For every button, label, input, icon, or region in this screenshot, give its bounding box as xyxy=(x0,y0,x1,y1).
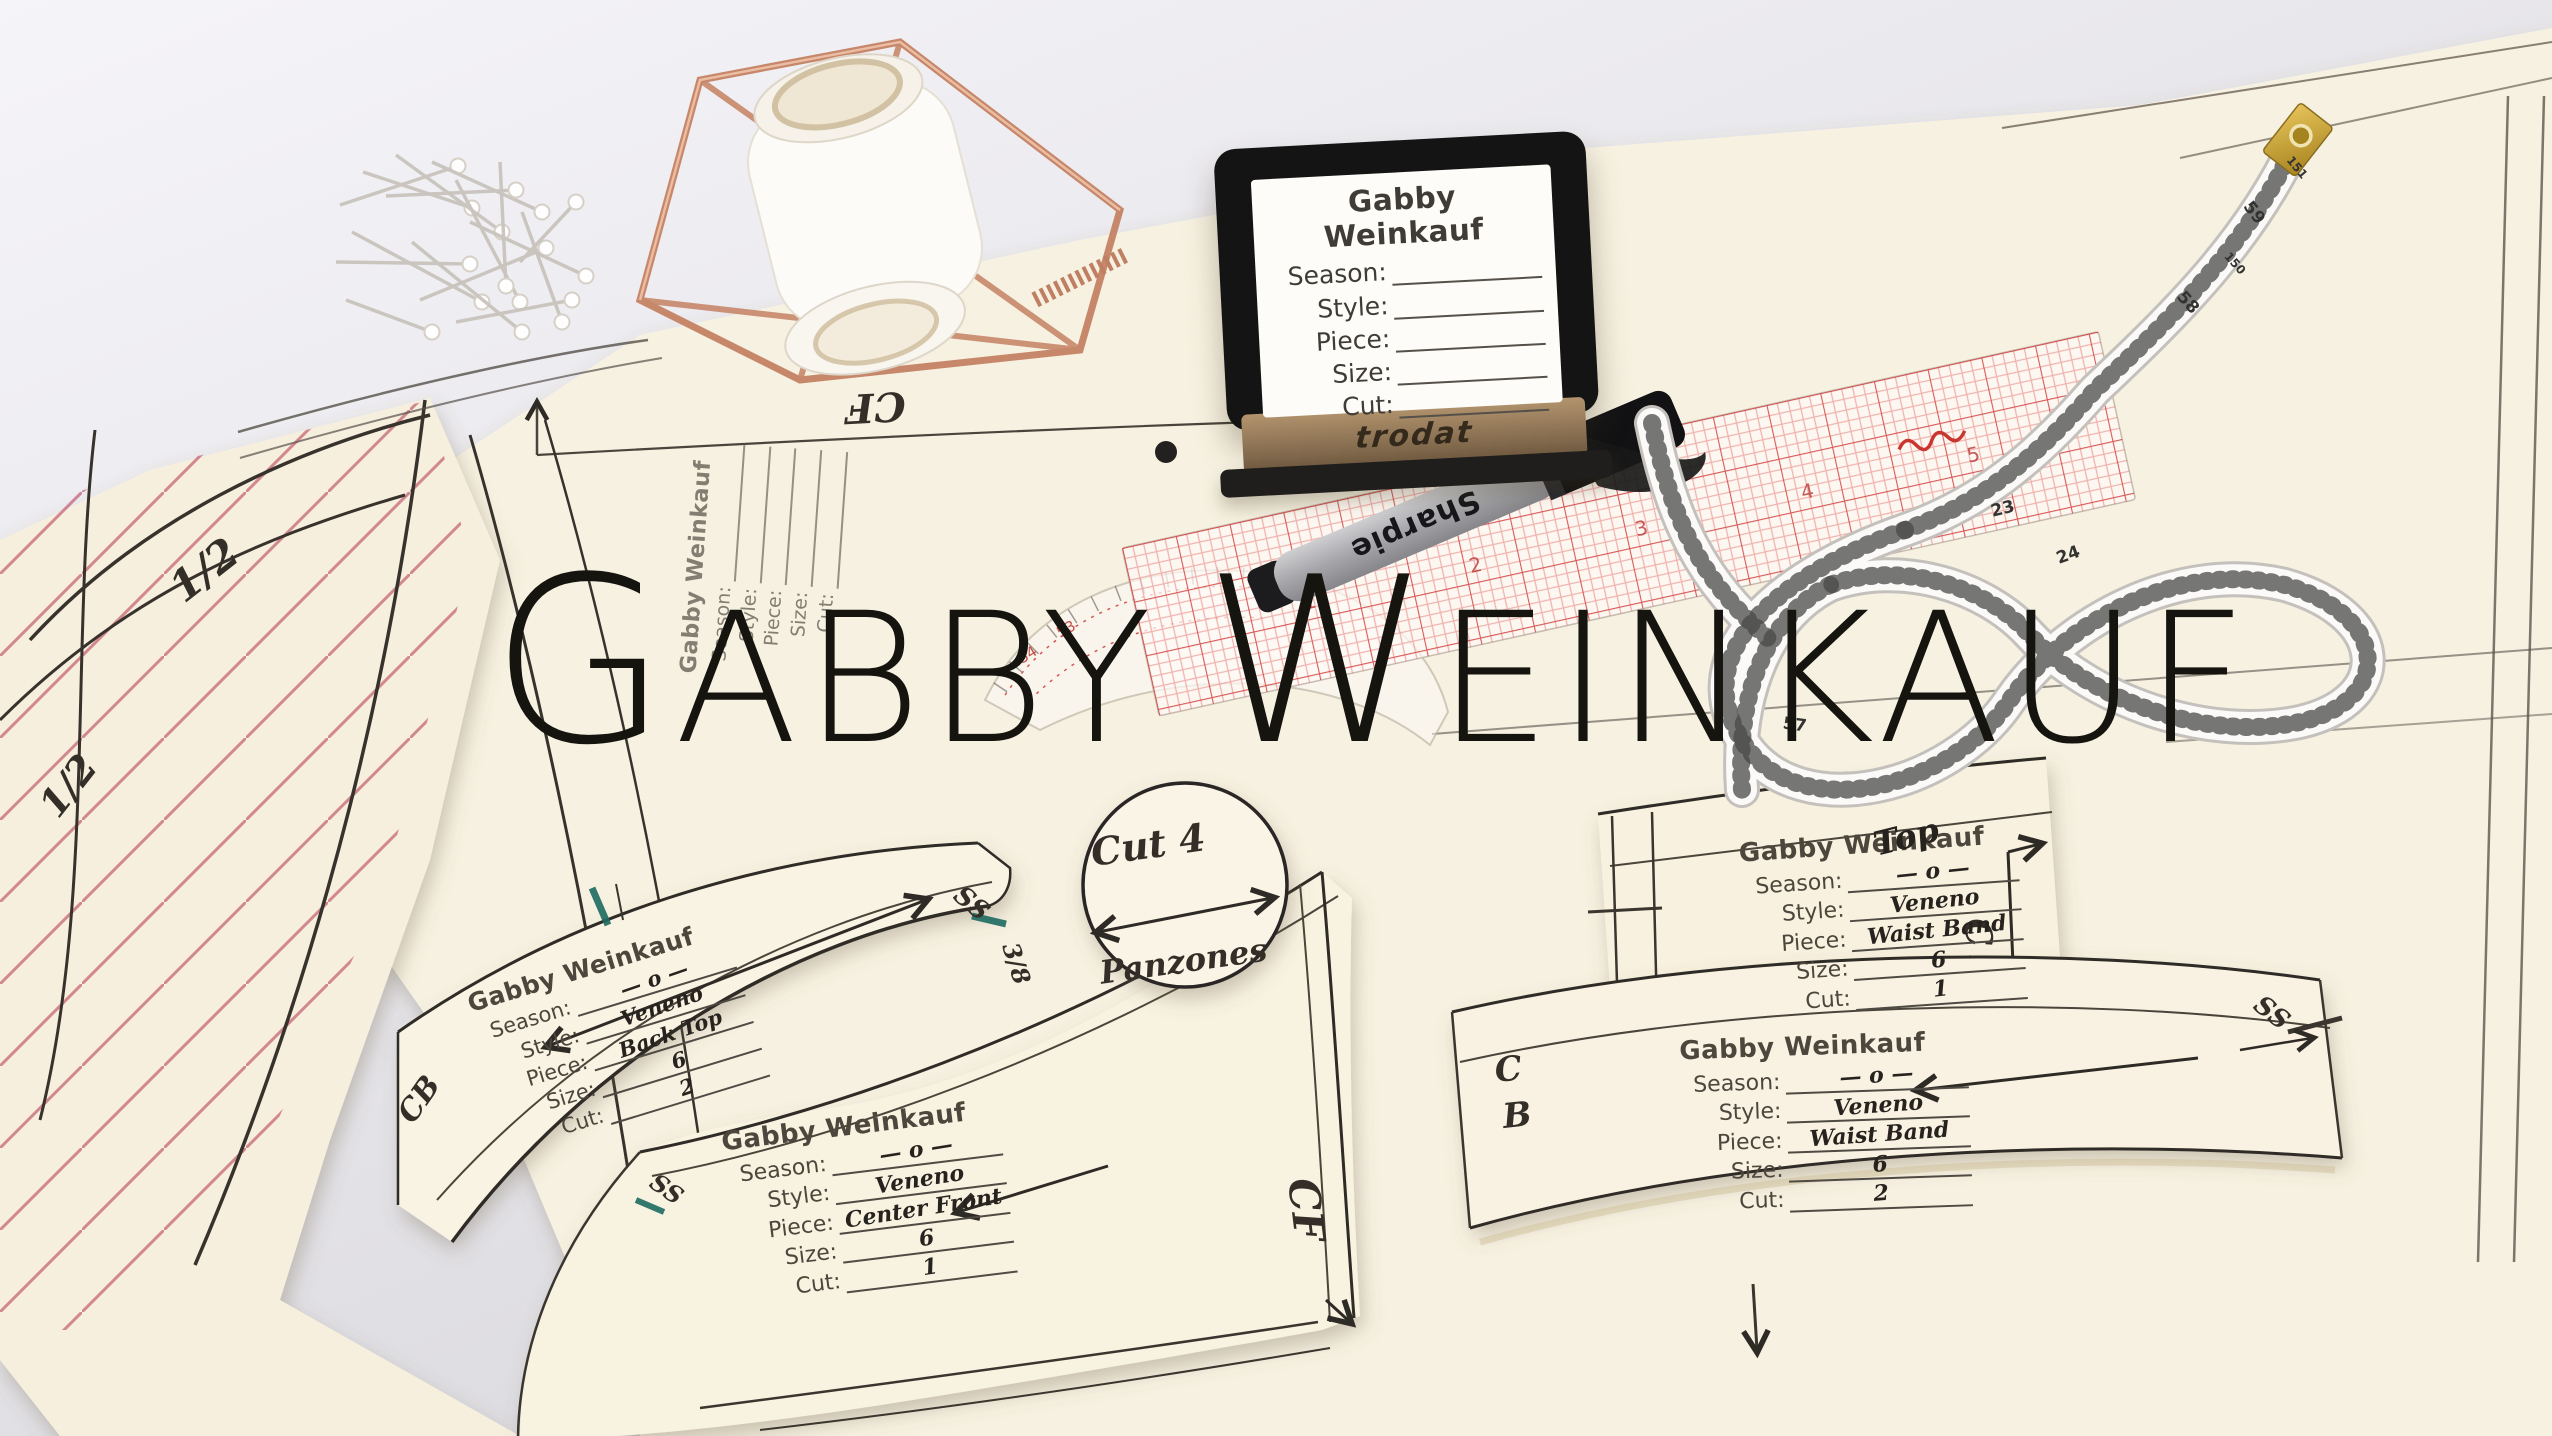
pin-head xyxy=(569,195,584,210)
stamp-imprint-waist-band-top: Gabby WeinkaufTopSeason:— o —Style:Venen… xyxy=(1706,819,2028,1022)
pin-shaft xyxy=(336,262,470,264)
pin-head xyxy=(463,257,478,272)
stamp-field-value: 2 xyxy=(676,1073,698,1101)
stamp-field-value: Veneno xyxy=(1832,1089,1923,1121)
stamp-field-label: Size: xyxy=(1641,1158,1789,1188)
pin-head xyxy=(509,183,524,198)
cb-label-b: B xyxy=(1500,1094,1534,1137)
stamp-field-value: 6 xyxy=(917,1224,936,1252)
stamp-imprint-center-front: Gabby WeinkaufSeason:— o —Style:VenenoPi… xyxy=(688,1094,1018,1312)
stamp-field-value: 6 xyxy=(667,1046,689,1074)
stamp-field-label: Cut: xyxy=(1642,1187,1790,1217)
stamp-field-value: 1 xyxy=(921,1253,940,1281)
pin-head xyxy=(499,279,514,294)
stamp-foot xyxy=(1155,441,1177,463)
cf-grainline-label: CF xyxy=(842,382,907,432)
stamp-field-label: Season: xyxy=(1269,257,1392,292)
cf-edge-label: CF xyxy=(1278,1175,1335,1247)
stamp-label: Gabby WeinkaufSeason:Style:Piece:Size:Cu… xyxy=(1251,164,1563,417)
self-inking-stamp: Gabby WeinkaufSeason:Style:Piece:Size:Cu… xyxy=(1213,131,1603,498)
title-word-2: EINKAUF xyxy=(1437,590,2254,770)
stamp-field-label: Piece: xyxy=(1273,323,1396,358)
stamp-field-label: Size: xyxy=(1274,357,1397,392)
stamp-imprint-waist-band-2: Gabby WeinkaufSeason:— o —Style:VenenoPi… xyxy=(1637,1026,1973,1219)
page-title: GABBYWEINKAUF xyxy=(490,548,2253,778)
pin-head xyxy=(555,315,570,330)
stamp-field-value: — o — xyxy=(1895,855,1971,889)
stamp-field-value: 2 xyxy=(1872,1180,1889,1207)
stamp-field-line: 2 xyxy=(1789,1177,1973,1212)
stamp-field-value: 6 xyxy=(1871,1151,1888,1178)
stamp-brand: trodat xyxy=(1354,414,1475,455)
title-initial-1: G xyxy=(490,548,674,778)
pin-head xyxy=(579,269,594,284)
stamp-field-label: Season: xyxy=(1638,1069,1786,1099)
pattern-piece-circle: Cut 4 Panzones xyxy=(1083,783,1287,992)
pin-head xyxy=(425,325,440,340)
pin-head xyxy=(515,325,530,340)
stamp-field-value: 1 xyxy=(1932,975,1950,1002)
stamp-field-value: — o — xyxy=(1839,1060,1915,1091)
stamp-title: Gabby Weinkauf xyxy=(1265,175,1540,257)
stamp-field-label: Piece: xyxy=(1640,1128,1788,1158)
pin-head xyxy=(565,293,580,308)
stamp-field-label: Style: xyxy=(1271,290,1394,325)
stamp-field-value: 6 xyxy=(1930,946,1948,973)
stamp-field-label: Style: xyxy=(1639,1099,1787,1129)
cb-label-c: C xyxy=(1493,1048,1524,1091)
pin-head xyxy=(535,205,550,220)
title-initial-2: W xyxy=(1204,548,1437,778)
title-word-1: ABBY xyxy=(675,590,1158,770)
